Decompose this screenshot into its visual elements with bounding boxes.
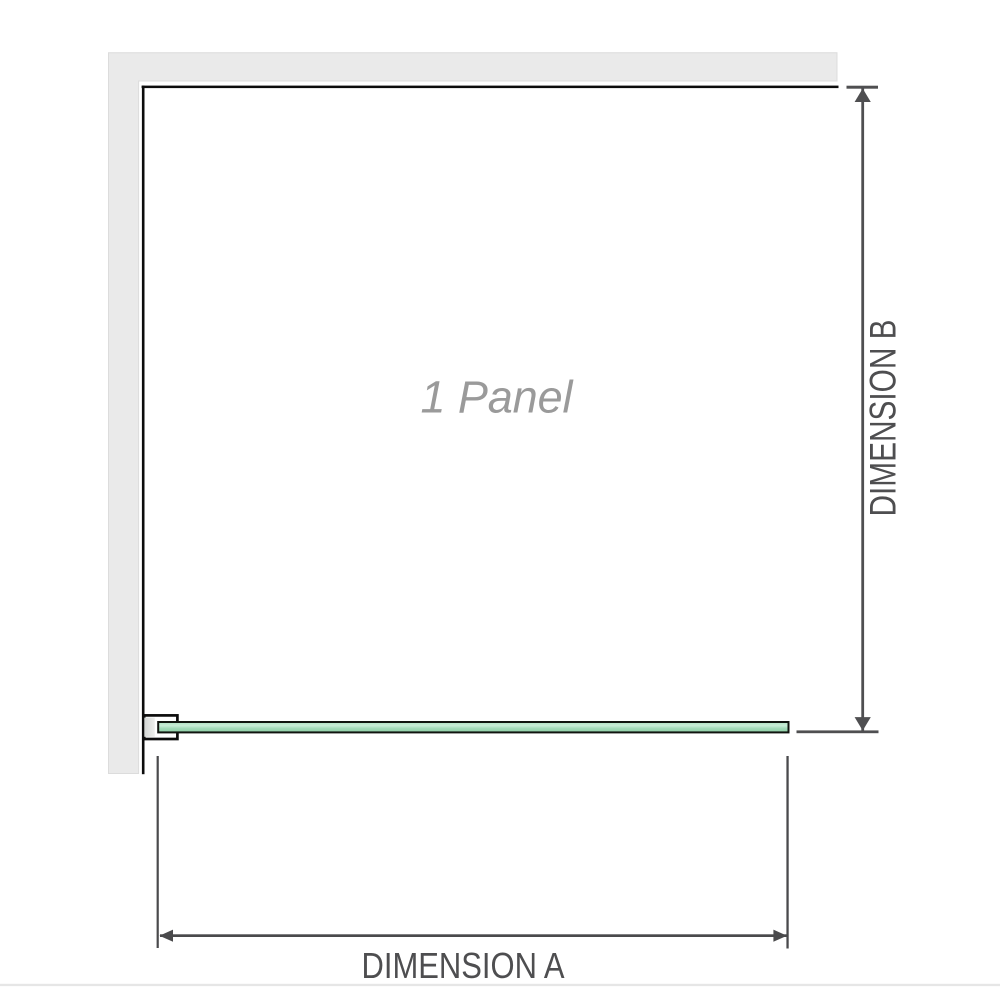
svg-text:DIMENSION B: DIMENSION B	[863, 320, 904, 517]
svg-text:1 Panel: 1 Panel	[421, 372, 575, 423]
svg-text:DIMENSION A: DIMENSION A	[362, 945, 566, 986]
